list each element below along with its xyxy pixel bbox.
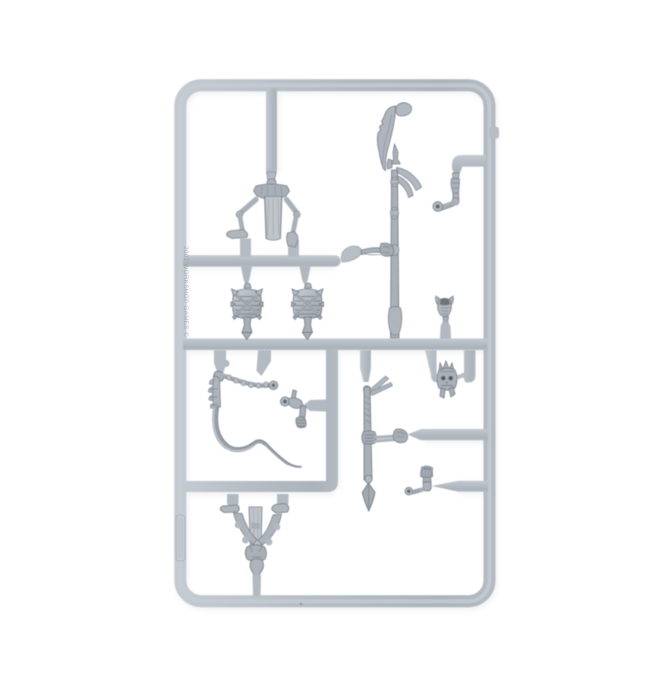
svg-text:2002 WORKSHOP GAMES ©: 2002 WORKSHOP GAMES © — [182, 246, 189, 337]
